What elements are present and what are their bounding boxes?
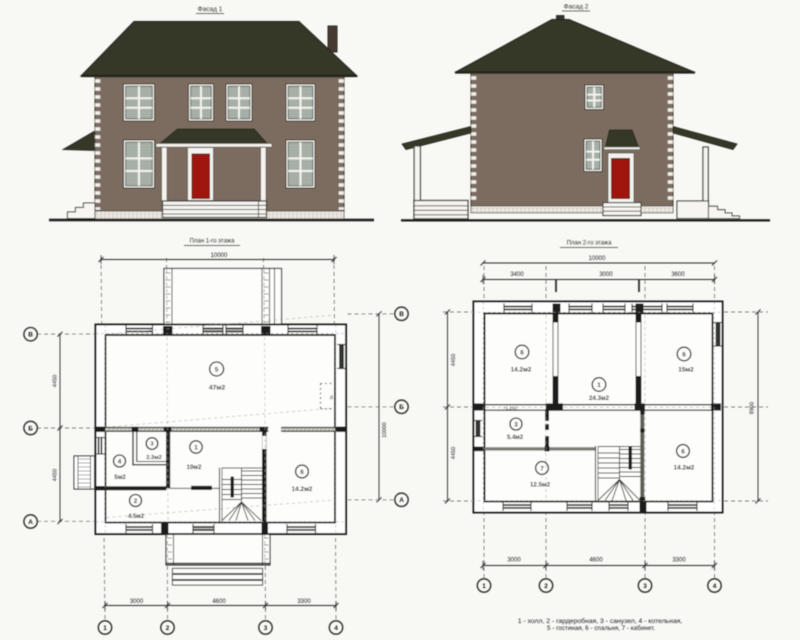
- svg-text:14.2м2: 14.2м2: [292, 486, 313, 493]
- svg-text:4: 4: [334, 625, 338, 632]
- svg-text:14.2м2: 14.2м2: [511, 367, 532, 374]
- svg-text:6: 6: [300, 469, 304, 476]
- svg-text:47м2: 47м2: [209, 385, 226, 392]
- svg-text:10000: 10000: [589, 256, 606, 262]
- svg-text:2: 2: [544, 583, 548, 590]
- svg-text:10000: 10000: [211, 253, 228, 259]
- svg-text:3000: 3000: [599, 272, 613, 278]
- svg-text:3000: 3000: [507, 558, 521, 564]
- svg-text:В: В: [399, 311, 404, 318]
- svg-text:В: В: [28, 332, 33, 339]
- svg-text:1: 1: [482, 583, 486, 590]
- svg-text:24.3м2: 24.3м2: [589, 395, 610, 402]
- svg-text:5: 5: [215, 366, 219, 373]
- svg-text:Б: Б: [28, 425, 33, 432]
- svg-text:4600: 4600: [212, 599, 226, 605]
- svg-text:4: 4: [713, 583, 717, 590]
- svg-text:План 1-го этажа: План 1-го этажа: [190, 239, 235, 245]
- svg-text:3: 3: [514, 421, 518, 428]
- svg-text:2: 2: [166, 625, 170, 632]
- svg-text:3400: 3400: [510, 272, 524, 278]
- svg-text:14.2м2: 14.2м2: [674, 465, 695, 472]
- svg-text:15м2: 15м2: [678, 367, 694, 374]
- svg-text:Б: Б: [399, 404, 404, 411]
- svg-text:4450: 4450: [53, 375, 59, 387]
- svg-text:4450: 4450: [53, 469, 59, 481]
- svg-text:10000: 10000: [382, 422, 388, 438]
- svg-text:6: 6: [682, 351, 686, 358]
- svg-text:3300: 3300: [672, 558, 686, 564]
- svg-text:А: А: [28, 519, 33, 526]
- svg-text:План 2-го этажа: План 2-го этажа: [567, 241, 612, 247]
- svg-text:6: 6: [681, 448, 685, 455]
- svg-text:1: 1: [194, 444, 198, 451]
- svg-text:4600: 4600: [589, 558, 603, 564]
- svg-text:8900: 8900: [750, 402, 756, 414]
- svg-text:3000: 3000: [130, 599, 144, 605]
- svg-text:3300: 3300: [297, 599, 311, 605]
- svg-text:3600: 3600: [671, 272, 685, 278]
- svg-text:+1.240: +1.240: [503, 405, 517, 410]
- svg-text:Фасад 1: Фасад 1: [198, 6, 223, 13]
- svg-text:2.3м2: 2.3м2: [146, 455, 162, 461]
- svg-text:3: 3: [264, 625, 268, 632]
- svg-text:4450: 4450: [451, 447, 457, 459]
- svg-text:1: 1: [103, 625, 107, 632]
- svg-text:7: 7: [540, 465, 544, 472]
- svg-text:1: 1: [597, 382, 601, 389]
- svg-text:1 - холл, 2 - гардеробная, 3 -: 1 - холл, 2 - гардеробная, 3 - санузел, …: [518, 617, 683, 625]
- svg-text:2: 2: [134, 498, 138, 505]
- svg-text:5 - гостиная, 6 - спальня, 7 -: 5 - гостиная, 6 - спальня, 7 - кабинет.: [547, 624, 655, 632]
- svg-text:6: 6: [520, 349, 524, 356]
- svg-text:Фасад 2: Фасад 2: [564, 4, 589, 11]
- svg-text:4.5м2: 4.5м2: [128, 514, 145, 520]
- svg-text:5м2: 5м2: [114, 474, 126, 481]
- svg-text:А: А: [399, 497, 404, 504]
- svg-text:5.4м2: 5.4м2: [507, 435, 524, 441]
- svg-text:10м2: 10м2: [187, 464, 202, 471]
- svg-text:4450: 4450: [451, 354, 457, 366]
- svg-text:12.5м2: 12.5м2: [530, 482, 551, 489]
- svg-text:4: 4: [118, 458, 122, 465]
- svg-text:3: 3: [643, 583, 647, 590]
